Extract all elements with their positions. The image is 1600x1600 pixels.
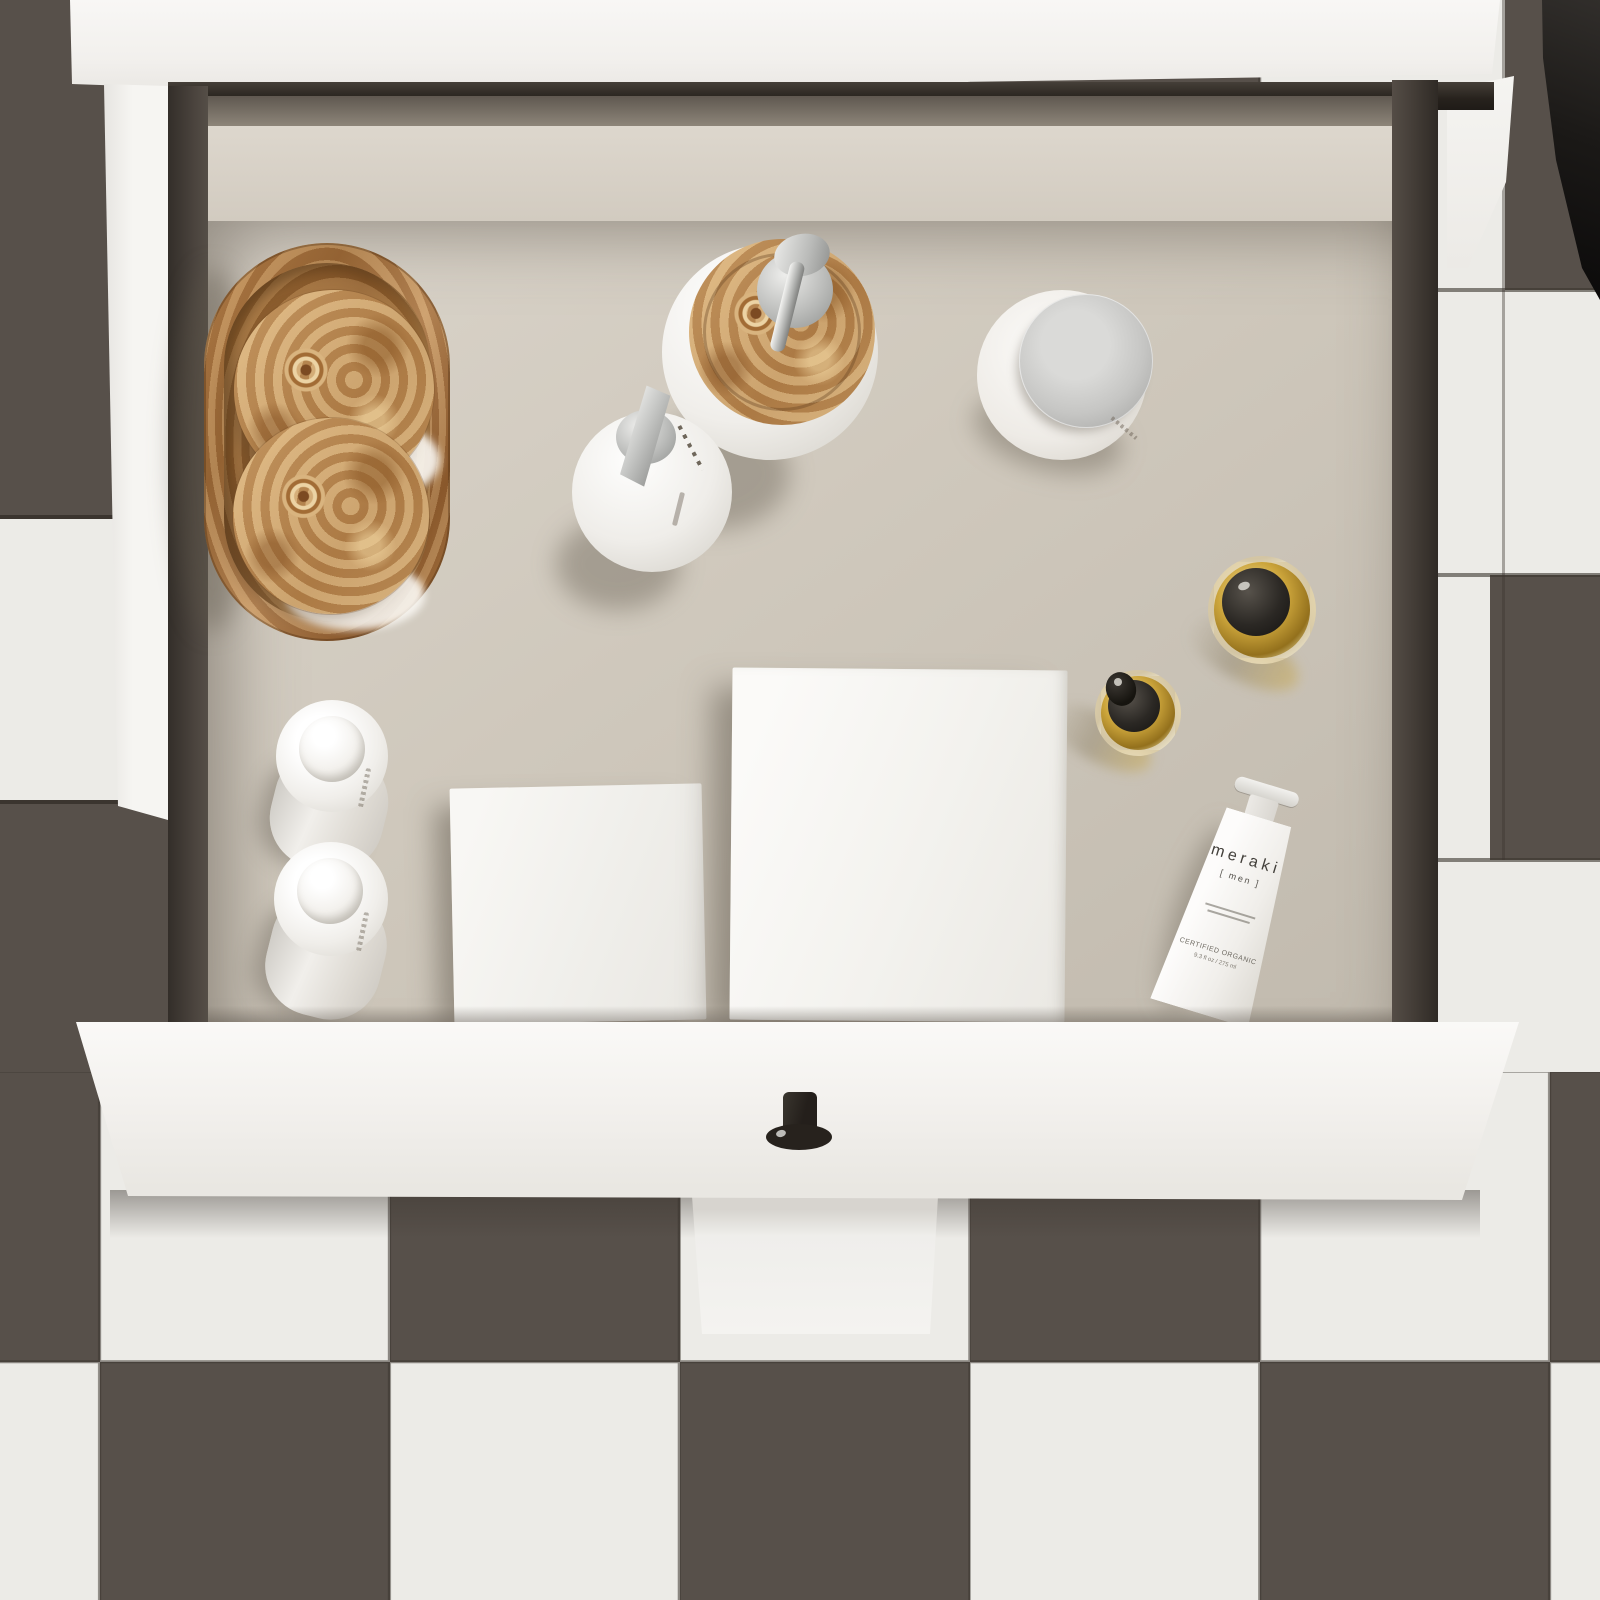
cabinet-plinth	[692, 1196, 938, 1334]
wood-lid-canister-bottom	[233, 418, 429, 614]
dropper-cap-large	[1222, 568, 1290, 636]
vanity-countertop	[70, 0, 1500, 90]
lotion-bottle-dome-cap-1	[299, 716, 365, 782]
drawer-back-panel	[208, 126, 1392, 221]
drawer-front-seam-shadow	[208, 1006, 1392, 1024]
dropper-cap-highlight	[1114, 678, 1122, 686]
floor-grout-line	[1430, 858, 1600, 862]
drawer-knob-base	[766, 1124, 832, 1150]
floor-dark-tile-mid-right	[1490, 575, 1600, 860]
white-box-small	[450, 783, 707, 1024]
floor-grout-line	[1430, 288, 1600, 292]
lotion-bottle-dome-cap-2	[297, 858, 363, 924]
cream-jar-chrome-lid	[1019, 294, 1153, 428]
floor-grout-line	[1430, 573, 1600, 577]
white-box-large	[729, 668, 1067, 1023]
drawer-back-edge	[208, 96, 1392, 126]
bathroom-scene: meraki [ men ] CERTIFIED ORGANIC 9.3 fl …	[0, 0, 1600, 1600]
drawer-side-wall-right	[1392, 80, 1438, 1044]
